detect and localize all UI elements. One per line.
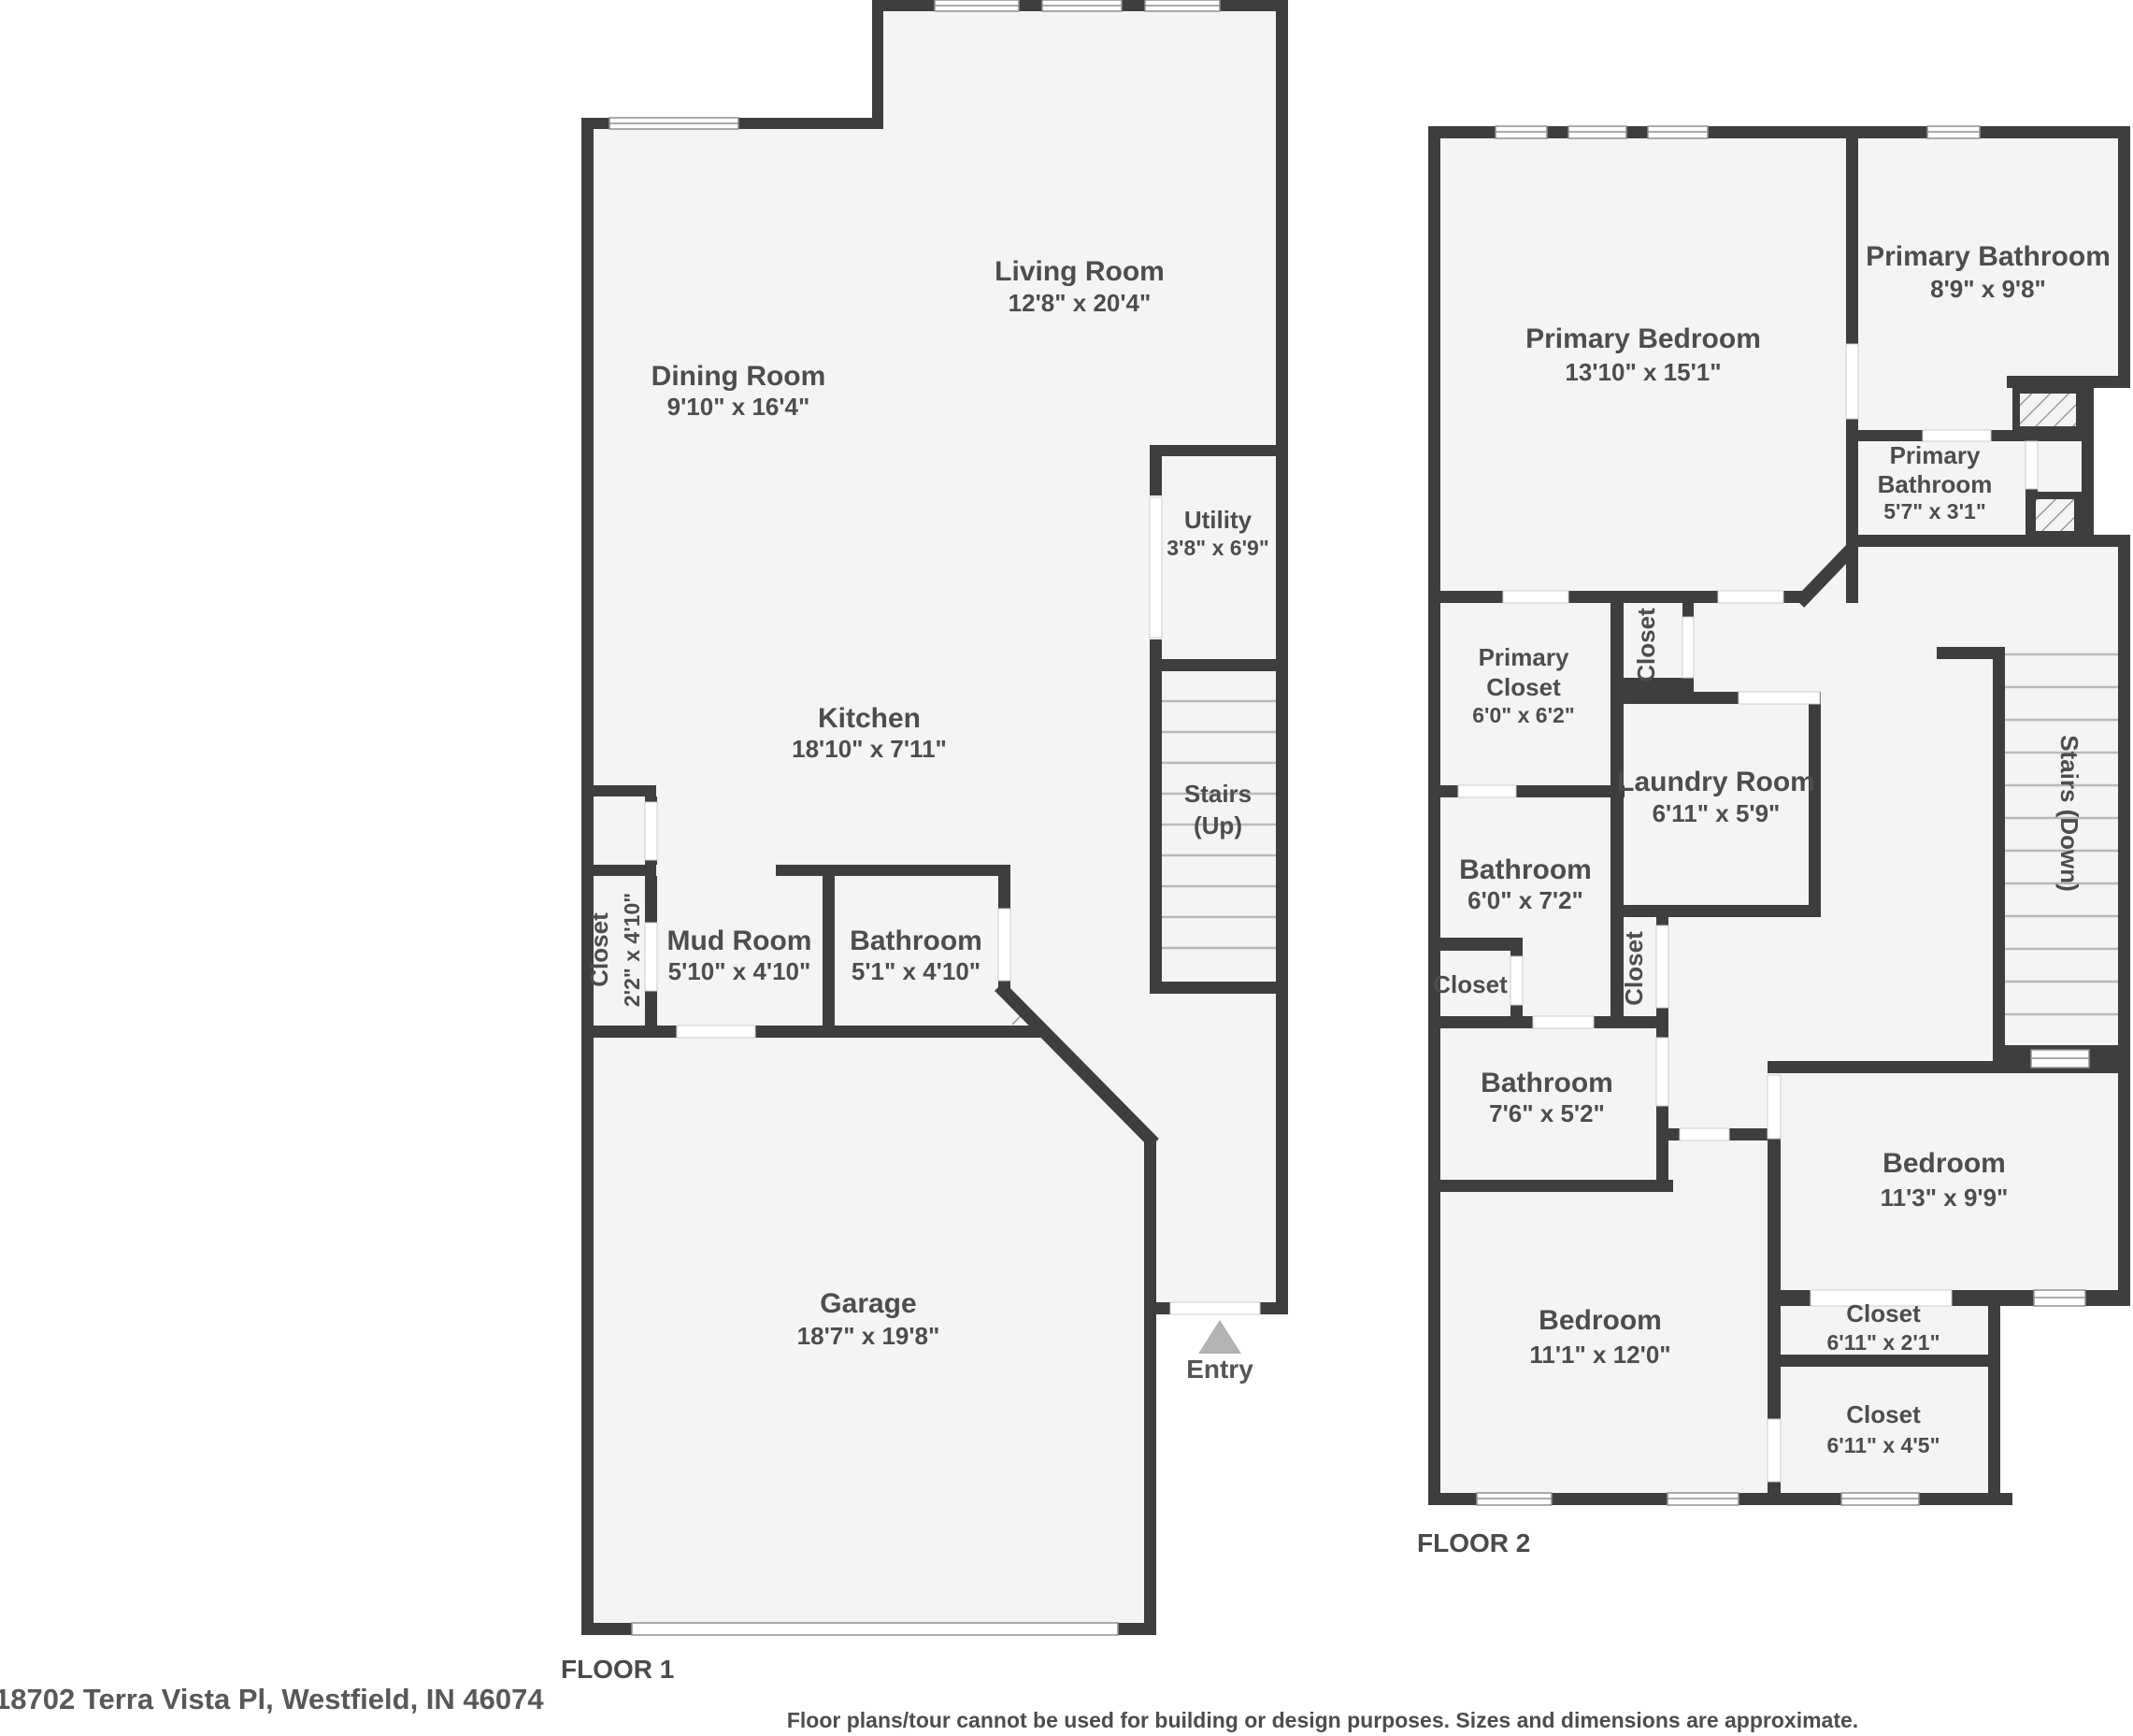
primary-bathroom2-label-1: Primary	[1890, 441, 1981, 469]
garage-dims: 18'7" x 19'8"	[797, 1322, 940, 1350]
garage-label: Garage	[820, 1288, 916, 1319]
bathroom-f1-dims: 5'1" x 4'10"	[852, 957, 981, 985]
laundry-room-dims: 6'11" x 5'9"	[1653, 799, 1781, 827]
closet-f1-dims: 2'2" x 4'10"	[620, 893, 644, 1007]
primary-bathroom2-dims: 5'7" x 3'1"	[1883, 499, 1986, 524]
entry-arrow-icon	[1198, 1320, 1241, 1354]
primary-bathroom1-label: Primary Bathroom	[1866, 241, 2111, 272]
utility-dims: 3'8" x 6'9"	[1167, 536, 1269, 560]
closet-small-label: Closet	[1433, 970, 1508, 998]
laundry-room-label: Laundry Room	[1617, 767, 1815, 797]
dining-room-dims: 9'10" x 16'4"	[667, 393, 810, 421]
floor1-floor-fill	[593, 11, 1276, 1623]
mud-room-dims: 5'10" x 4'10"	[668, 957, 811, 985]
closet1-label: Closet	[1846, 1299, 1921, 1327]
bedroom-right-dims: 11'3" x 9'9"	[1881, 1184, 2009, 1212]
kitchen-dims: 18'10" x 7'11"	[792, 735, 947, 763]
bathroom-lower-label: Bathroom	[1481, 1068, 1613, 1098]
floor2-exterior-notch	[2094, 388, 2118, 538]
stairs-down-label: Stairs (Down)	[2055, 735, 2083, 892]
bedroom-right-label: Bedroom	[1882, 1148, 2006, 1179]
floor1-title: FLOOR 1	[561, 1655, 674, 1684]
entry-label: Entry	[1186, 1355, 1253, 1384]
floor-plan-page: Living Room 12'8" x 20'4" Dining Room 9'…	[0, 0, 2133, 1736]
closet-lower-label: Closet	[1620, 931, 1648, 1006]
living-room-label: Living Room	[995, 256, 1165, 287]
bathroom-mid-dims: 6'0" x 7'2"	[1467, 886, 1583, 914]
primary-bedroom-label: Primary Bedroom	[1525, 323, 1761, 354]
mud-room-label: Mud Room	[667, 925, 812, 956]
primary-bathroom2-label-2: Bathroom	[1878, 470, 1993, 498]
disclaimer-text: Floor plans/tour cannot be used for buil…	[787, 1708, 1858, 1732]
closet-upper-label: Closet	[1632, 608, 1660, 682]
utility-label: Utility	[1184, 506, 1253, 534]
floor-plan-drawing: Living Room 12'8" x 20'4" Dining Room 9'…	[0, 0, 2133, 1736]
primary-closet-dims: 6'0" x 6'2"	[1472, 703, 1575, 727]
primary-bedroom-dims: 13'10" x 15'1"	[1565, 358, 1721, 386]
closet2-dims: 6'11" x 4'5"	[1826, 1433, 1940, 1457]
bathroom-f1-label: Bathroom	[850, 925, 982, 956]
bedroom-left-label: Bedroom	[1539, 1305, 1662, 1336]
living-room-dims: 12'8" x 20'4"	[1009, 289, 1152, 317]
stairs-up-label-2: (Up)	[1194, 811, 1242, 839]
closet2-label: Closet	[1846, 1400, 1921, 1428]
dining-room-label: Dining Room	[651, 361, 826, 392]
primary-bathroom1-dims: 8'9" x 9'8"	[1930, 275, 2046, 303]
kitchen-label: Kitchen	[818, 703, 921, 734]
primary-closet-label-2: Closet	[1486, 673, 1561, 701]
address-text: 18702 Terra Vista Pl, Westfield, IN 4607…	[0, 1683, 544, 1715]
bathroom-lower-dims: 7'6" x 5'2"	[1489, 1099, 1605, 1127]
primary-closet-label-1: Primary	[1479, 643, 1569, 671]
bedroom-left-dims: 11'1" x 12'0"	[1529, 1341, 1670, 1369]
closet-f1-label: Closet	[585, 912, 613, 987]
closet1-dims: 6'11" x 2'1"	[1826, 1330, 1940, 1355]
floor2-title: FLOOR 2	[1417, 1528, 1530, 1557]
stairs-up-label-1: Stairs	[1184, 780, 1252, 808]
bathroom-mid-label: Bathroom	[1459, 854, 1592, 885]
